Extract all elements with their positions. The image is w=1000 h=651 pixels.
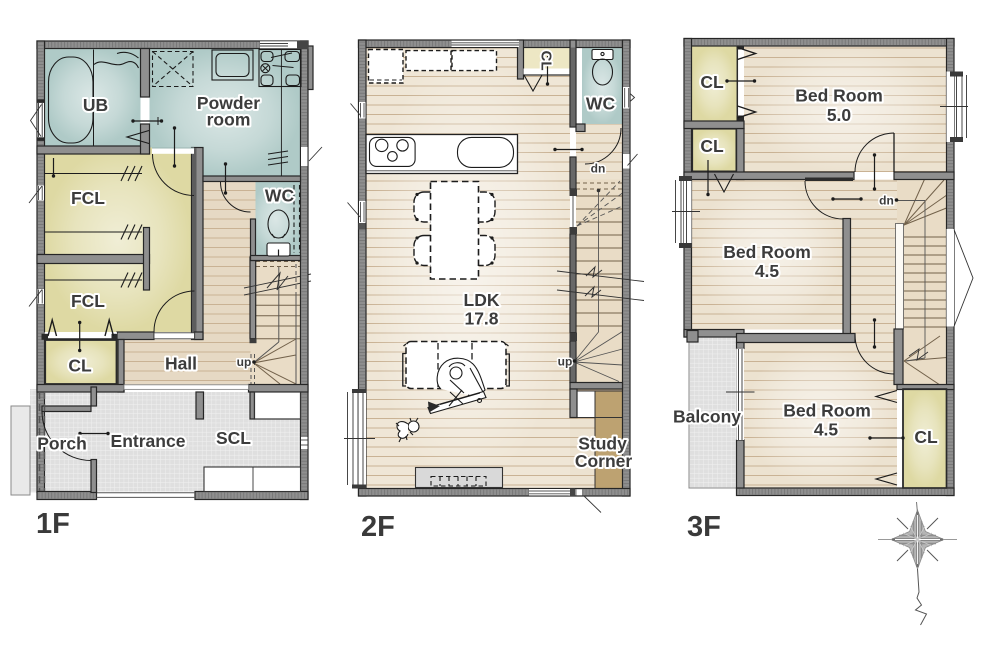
svg-text:Porch: Porch [37, 434, 87, 454]
svg-text:Corner: Corner [575, 451, 633, 471]
svg-text:Bed Room: Bed Room [795, 86, 883, 106]
svg-text:17.8: 17.8 [464, 309, 498, 329]
svg-text:SCL: SCL [216, 428, 251, 448]
svg-text:WC: WC [586, 94, 616, 114]
svg-text:UB: UB [83, 95, 108, 115]
svg-text:Hall: Hall [165, 354, 197, 374]
svg-text:Entrance: Entrance [111, 431, 186, 451]
svg-text:CL: CL [538, 51, 555, 71]
svg-text:FCL: FCL [71, 188, 105, 208]
svg-text:1F: 1F [36, 508, 70, 540]
svg-text:4.5: 4.5 [814, 420, 839, 440]
svg-text:WC: WC [265, 186, 295, 206]
svg-text:CL: CL [700, 72, 724, 92]
svg-text:dn: dn [591, 162, 606, 176]
svg-text:5.0: 5.0 [827, 105, 852, 125]
svg-text:Balcony: Balcony [673, 407, 741, 427]
svg-text:LDK: LDK [464, 290, 500, 310]
svg-text:3F: 3F [687, 511, 721, 543]
svg-text:Bed Room: Bed Room [783, 401, 871, 421]
svg-text:Bed Room: Bed Room [723, 242, 811, 262]
svg-text:up: up [558, 355, 573, 369]
svg-text:FCL: FCL [71, 291, 105, 311]
svg-text:dn: dn [879, 194, 894, 208]
svg-text:CL: CL [68, 356, 92, 376]
svg-text:CL: CL [700, 136, 724, 156]
svg-text:up: up [237, 355, 252, 369]
svg-text:CL: CL [914, 427, 938, 447]
svg-text:room: room [207, 110, 251, 130]
svg-text:2F: 2F [361, 511, 395, 543]
svg-text:4.5: 4.5 [755, 261, 780, 281]
